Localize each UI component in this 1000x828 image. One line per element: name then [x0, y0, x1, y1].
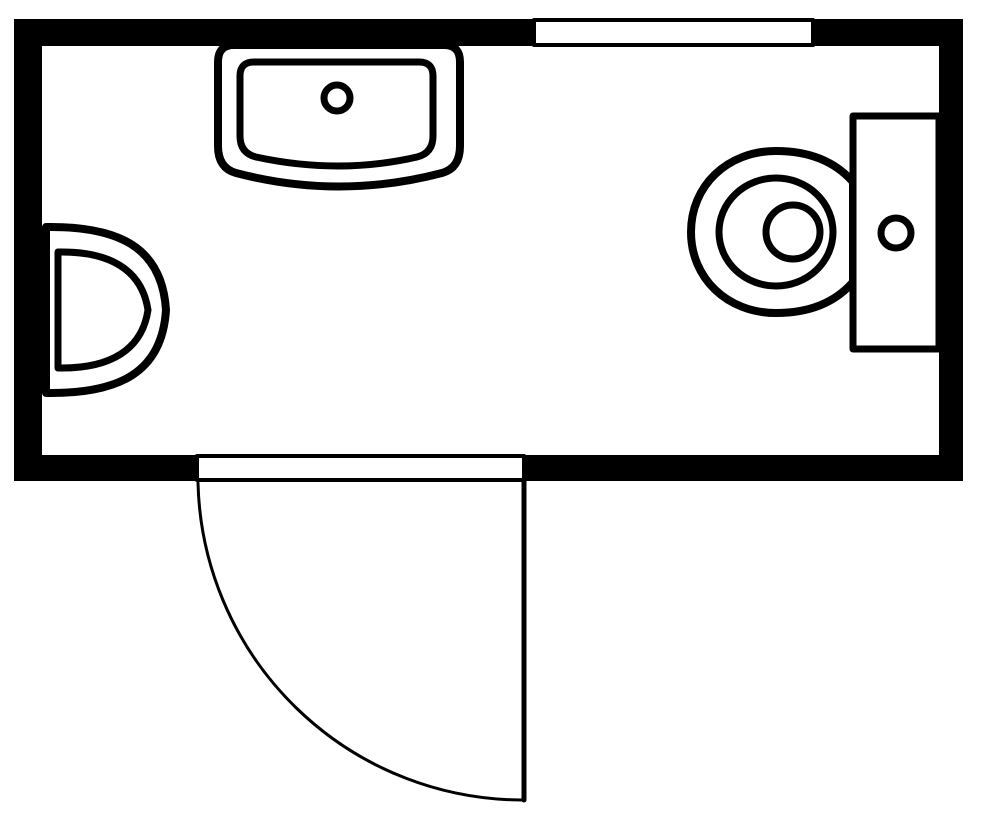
door-opening — [197, 456, 524, 480]
window — [534, 20, 813, 45]
sink-faucet — [324, 85, 350, 111]
bathroom-floor-plan — [0, 0, 1000, 828]
wall-top — [14, 19, 963, 46]
toilet-bowl-inner — [766, 205, 820, 259]
wall-left — [14, 19, 42, 481]
wall-right — [939, 19, 963, 481]
toilet-flush-button — [881, 218, 911, 248]
floor-plan-svg — [0, 0, 1000, 828]
door-swing-arc — [198, 483, 524, 800]
